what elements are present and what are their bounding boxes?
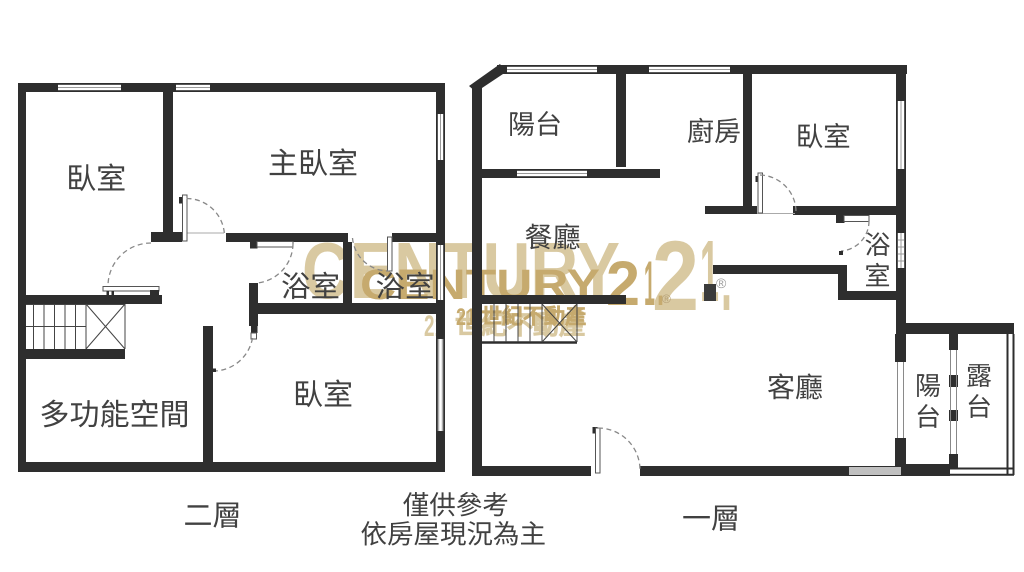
svg-text:1: 1 (644, 249, 655, 319)
svg-text:®: ® (662, 292, 671, 306)
svg-text:®: ® (716, 275, 727, 291)
svg-text:2: 2 (606, 249, 640, 319)
svg-text:.: . (657, 249, 664, 319)
